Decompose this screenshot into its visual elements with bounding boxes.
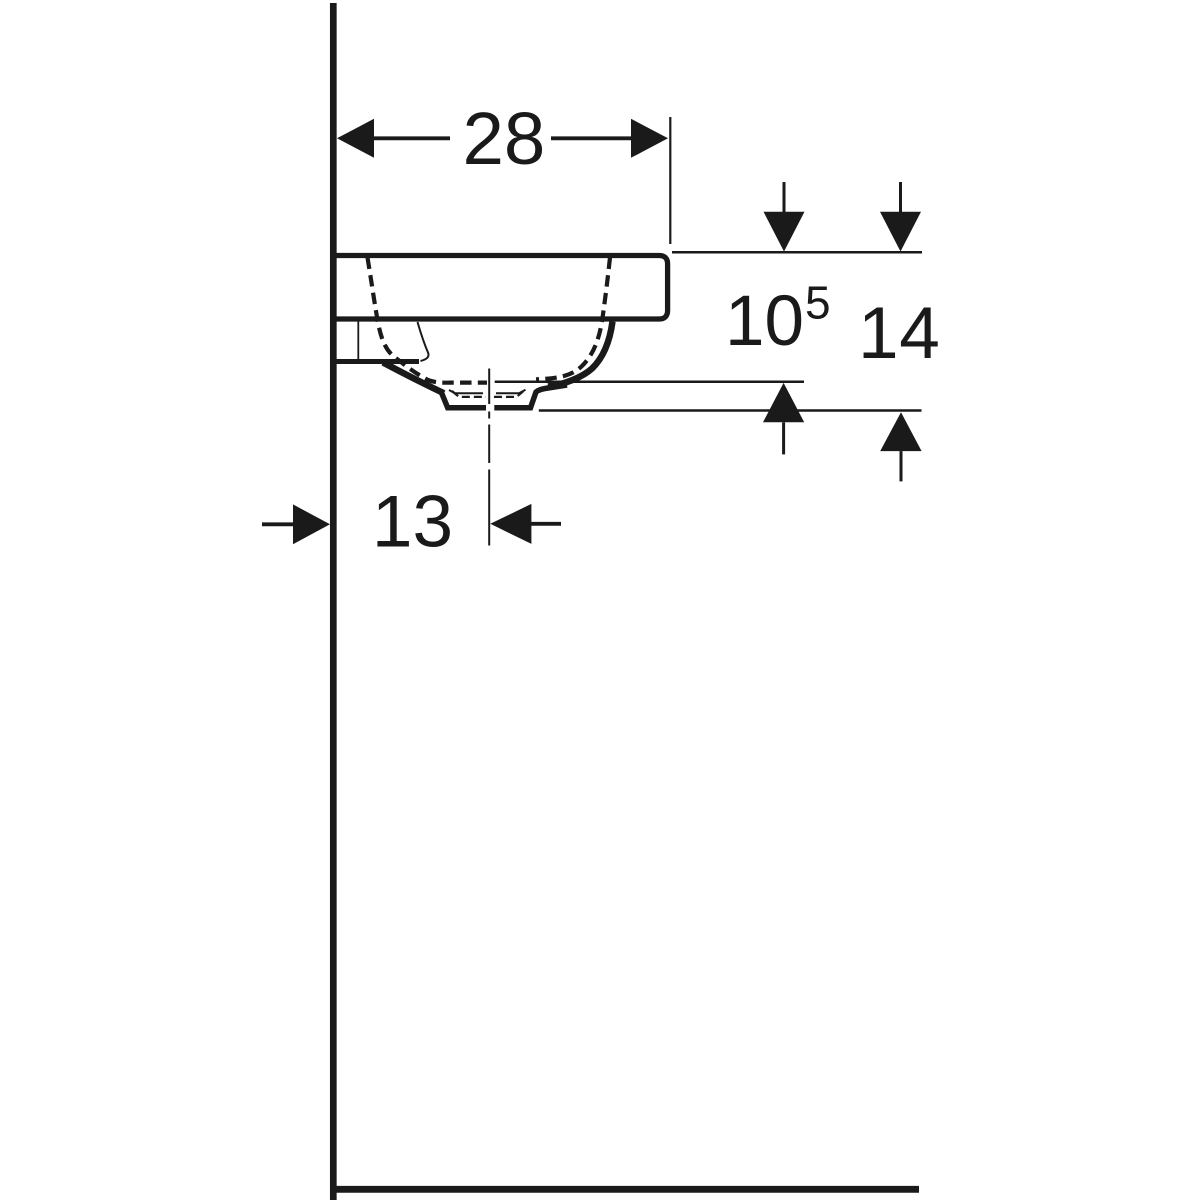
svg-text:28: 28 <box>463 97 546 180</box>
svg-text:14: 14 <box>858 293 941 374</box>
svg-text:5: 5 <box>805 277 831 329</box>
svg-text:10: 10 <box>725 282 804 361</box>
svg-text:13: 13 <box>372 482 453 563</box>
